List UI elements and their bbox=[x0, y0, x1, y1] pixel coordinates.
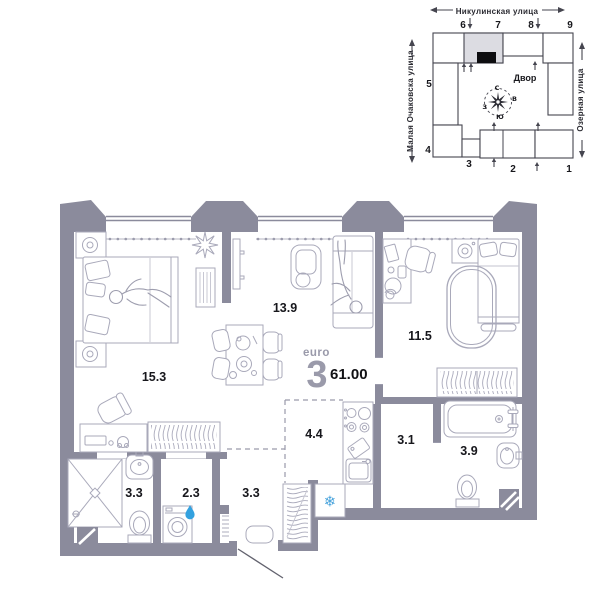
bedroom-main-furniture bbox=[76, 232, 220, 452]
fridge-snowflake-icon: ❄ bbox=[324, 493, 337, 511]
toilet bbox=[128, 511, 151, 543]
bedroom-second-furniture bbox=[383, 239, 519, 397]
compass-east: В bbox=[512, 95, 517, 103]
kitchen-sink bbox=[346, 459, 371, 482]
area-kitchen-zone: 4.4 bbox=[305, 427, 322, 441]
plan-canvas: Никулинская улица Малая Очаковска улица … bbox=[0, 0, 600, 600]
compass-rose-icon: С В З Ю bbox=[482, 84, 517, 121]
utility-shaft bbox=[77, 527, 98, 546]
bathroom-furniture bbox=[444, 401, 522, 510]
apartment-summary: euro 3 61.00 bbox=[303, 347, 368, 396]
shelf-cabinet bbox=[196, 268, 215, 307]
area-living-room: 13.9 bbox=[273, 301, 297, 315]
shower-door-opening bbox=[97, 452, 127, 458]
section-5: 5 bbox=[426, 79, 432, 90]
armchair bbox=[291, 245, 321, 289]
bathroom-sink bbox=[497, 443, 522, 468]
window-glazing bbox=[106, 217, 493, 221]
entrance-door-swing bbox=[238, 549, 283, 578]
toilet bbox=[456, 475, 479, 507]
section-4: 4 bbox=[425, 145, 431, 156]
compass-south: Ю bbox=[496, 113, 504, 121]
tv-panel bbox=[233, 239, 244, 289]
dining-table bbox=[211, 325, 282, 385]
street-left-label: Малая Очаковска улица bbox=[406, 50, 415, 152]
section-1: 1 bbox=[566, 164, 572, 175]
section-8: 8 bbox=[528, 20, 534, 31]
speaker-cabinet bbox=[76, 341, 106, 367]
speaker-cabinet bbox=[76, 232, 106, 258]
shower-cabin bbox=[68, 459, 122, 527]
area-laundry: 2.3 bbox=[182, 486, 199, 500]
entrance-jamb bbox=[229, 541, 237, 553]
hall-wardrobe bbox=[283, 484, 311, 543]
street-top-label: Никулинская улица bbox=[456, 7, 539, 16]
sofa bbox=[331, 236, 373, 328]
double-bed bbox=[83, 257, 178, 343]
fridge: ❄ bbox=[315, 484, 345, 517]
compass-north: С bbox=[495, 84, 500, 92]
section-7: 7 bbox=[495, 20, 501, 31]
area-bedroom-second: 11.5 bbox=[408, 329, 432, 343]
area-hallway: 3.3 bbox=[242, 486, 259, 500]
rooms-count: 3 bbox=[306, 354, 327, 396]
area-bedroom-main: 15.3 bbox=[142, 370, 166, 384]
compass-west: З bbox=[482, 103, 487, 111]
kitchen-furniture: ❄ bbox=[315, 402, 373, 517]
total-area: 61.00 bbox=[330, 366, 368, 383]
wardrobe bbox=[148, 422, 220, 452]
area-inner-hall: 3.1 bbox=[397, 433, 414, 447]
area-shower-room: 3.3 bbox=[125, 486, 142, 500]
site-plan: Никулинская улица Малая Очаковска улица … bbox=[406, 7, 585, 175]
desk-with-chair bbox=[383, 239, 436, 303]
area-bathroom: 3.9 bbox=[460, 444, 477, 458]
section-3: 3 bbox=[466, 159, 472, 170]
courtyard-label: Двор bbox=[514, 73, 537, 83]
plant-icon bbox=[192, 232, 218, 258]
wardrobe bbox=[437, 368, 517, 397]
single-bed bbox=[478, 239, 519, 331]
section-6: 6 bbox=[460, 20, 466, 31]
apartment-location-marker bbox=[477, 52, 496, 63]
pouf bbox=[246, 526, 273, 543]
desk-with-chair bbox=[80, 392, 147, 452]
floor-plan: ❄ bbox=[60, 200, 537, 578]
street-right-label: Озерная улица bbox=[576, 68, 585, 132]
kitchen-zone-dashed-boundary bbox=[227, 400, 343, 483]
site-building-outline bbox=[433, 18, 573, 171]
shower-sink bbox=[126, 452, 153, 479]
floorplan-page: Никулинская улица Малая Очаковска улица … bbox=[0, 0, 600, 600]
section-9: 9 bbox=[567, 20, 573, 31]
laundry-door-opening bbox=[166, 452, 206, 458]
utility-shaft bbox=[499, 489, 519, 510]
section-2: 2 bbox=[510, 164, 516, 175]
bathtub bbox=[444, 401, 518, 437]
